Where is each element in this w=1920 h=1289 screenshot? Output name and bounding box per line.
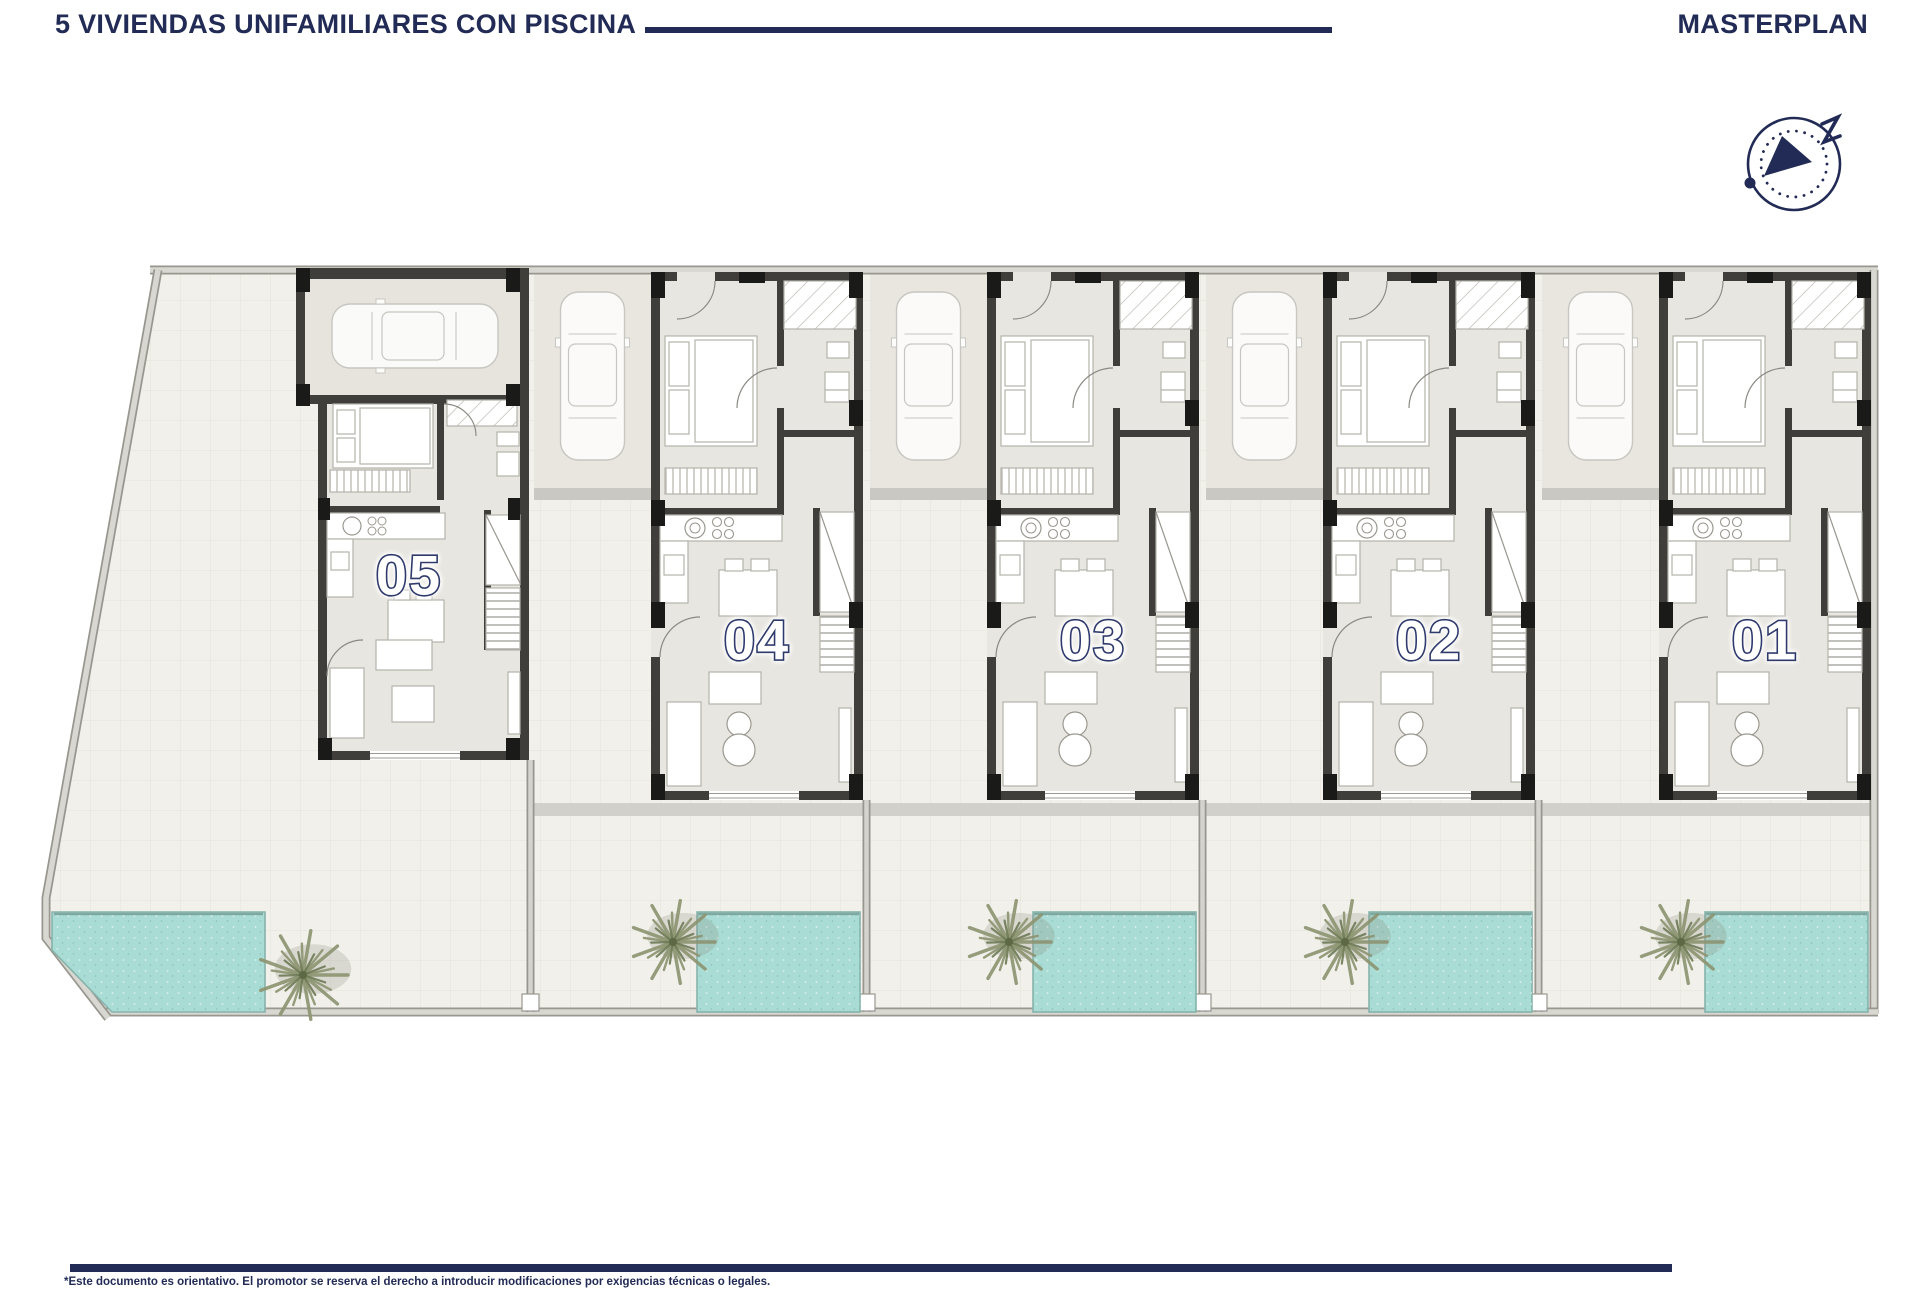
- driveway-step: [534, 488, 651, 500]
- car-icon: [892, 292, 966, 460]
- stairs: [1828, 616, 1862, 672]
- wardrobe: [665, 468, 757, 494]
- closet: [1792, 281, 1864, 329]
- driveway-step: [1542, 488, 1659, 500]
- footer-bar: [70, 1264, 1672, 1272]
- unit-number-label: 01: [1732, 609, 1798, 672]
- house: [651, 272, 863, 800]
- terrace-step: [534, 803, 863, 816]
- terrace-step: [1206, 803, 1535, 816]
- closet: [784, 281, 856, 329]
- house: [1323, 272, 1535, 800]
- stairs: [1492, 616, 1526, 672]
- terrace-step: [870, 803, 1199, 816]
- unit-number-label: 03: [1060, 609, 1126, 672]
- closet: [1456, 281, 1528, 329]
- closet: [1120, 281, 1192, 329]
- unit-number-label: 04: [724, 609, 790, 672]
- divider-pillar: [522, 994, 539, 1011]
- site-plan: 0504030201: [0, 0, 1920, 1280]
- car-icon: [1564, 292, 1638, 460]
- house: [987, 272, 1199, 800]
- disclaimer-text: *Este documento es orientativo. El promo…: [64, 1275, 770, 1289]
- unit-number-label: 02: [1396, 609, 1462, 672]
- plan-root: 0504030201: [46, 268, 1878, 1019]
- pool-unit-05: [52, 912, 265, 1012]
- wardrobe: [1001, 468, 1093, 494]
- terrace-step: [1542, 803, 1871, 816]
- driveway-step: [870, 488, 987, 500]
- wardrobe: [1337, 468, 1429, 494]
- unit-number-label: 05: [376, 544, 442, 607]
- wardrobe: [1673, 468, 1765, 494]
- car-icon: [332, 299, 498, 373]
- car-icon: [556, 292, 630, 460]
- stairs: [820, 616, 854, 672]
- driveway-step: [1206, 488, 1323, 500]
- house: [1659, 272, 1871, 800]
- car-icon: [1228, 292, 1302, 460]
- stairs: [1156, 616, 1190, 672]
